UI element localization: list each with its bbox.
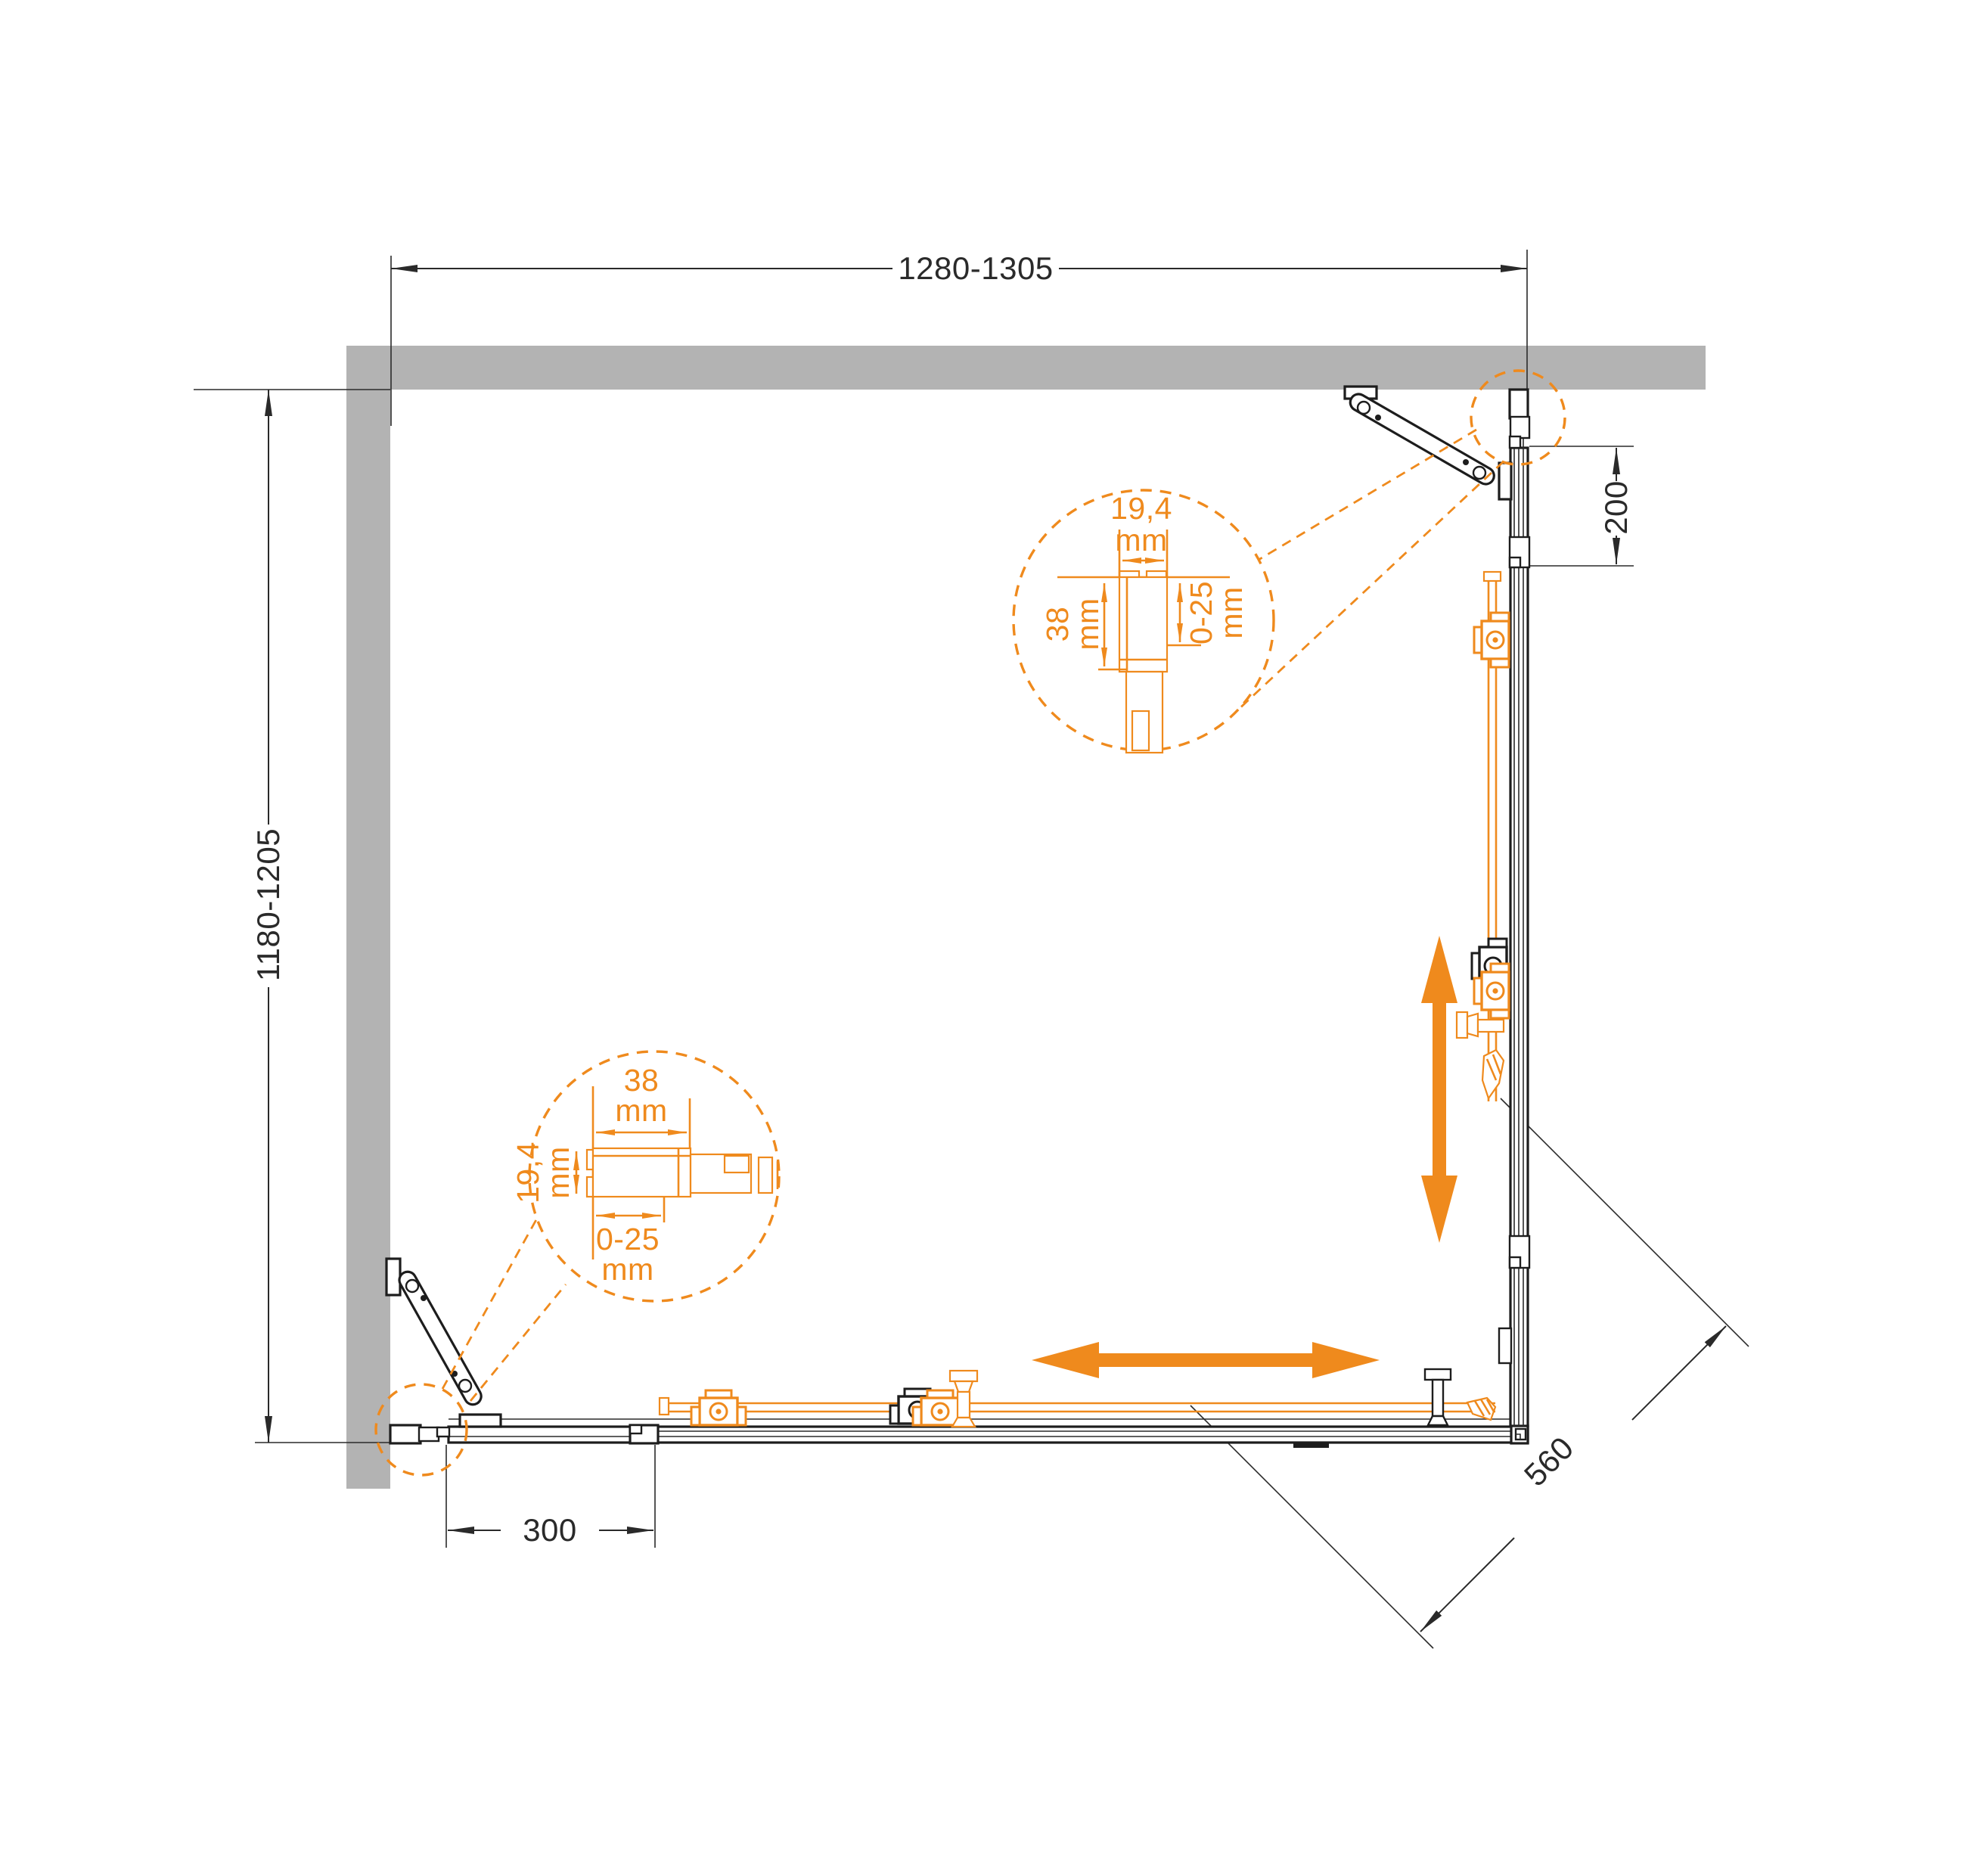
door-roller [691,1390,746,1425]
diagonal-entry-dimension: 560 [1190,1098,1749,1648]
inner-handle-knob [1425,1369,1451,1425]
door-end-cap [660,1398,669,1415]
support-bar-left [386,1259,501,1427]
right-sliding-door [1457,572,1509,1101]
bottom-offset-label: 300 [523,1512,577,1548]
detail-top-depth-unit: mm [1070,598,1105,650]
slide-direction-arrow-horizontal [1032,1342,1380,1378]
slide-direction-arrow-vertical [1421,936,1457,1243]
panel-clamp [1499,463,1511,499]
depth-label: 1180-1205 [250,828,286,981]
bottom-sliding-door [660,1371,1495,1427]
top-wall [346,346,1706,390]
right-panel-assembly [1499,390,1529,1426]
width-label: 1280-1305 [898,250,1053,286]
right-offset-label: 200 [1598,480,1634,535]
door-roller [1474,613,1509,667]
diagonal-ext-upper [1501,1098,1749,1346]
left-wall [346,346,390,1489]
detail-side-width-unit: mm [615,1093,667,1128]
floor-bracket [1293,1443,1329,1448]
plan-canvas: 1280-1305 1180-1205 200 300 560 [0,0,1965,1876]
bottom-wall-profile [390,1425,421,1443]
right-offset-dimension: 200 [1529,446,1634,566]
detail-view-side-profile: 38 mm 19,4 mm 0-25 mm [511,1063,778,1287]
bottom-offset-dimension: 300 [446,1445,655,1548]
wall-bracket [386,1259,400,1295]
support-bar-top [1345,387,1511,499]
detail-side-depth-unit: mm [541,1146,576,1198]
detail-leader [1259,430,1476,560]
bottom-rail-profile [449,1427,1528,1443]
detail-side-adjust-unit: mm [601,1252,653,1287]
detail-leader [470,1284,566,1401]
right-wall-profile [1510,390,1528,418]
door-end-cap [1484,572,1501,581]
detail-top-adjust-unit: mm [1214,586,1249,638]
detail-leader [1236,461,1504,712]
detail-top-width: 19,4 [1110,491,1172,526]
shower-plan-drawing: 1280-1305 1180-1205 200 300 560 [0,0,1965,1876]
detail-view-top-profile: 19,4 mm 38 mm 0-25 mm [1040,491,1249,753]
door-guide [1499,1328,1511,1363]
detail-top-width-unit: mm [1115,523,1167,558]
